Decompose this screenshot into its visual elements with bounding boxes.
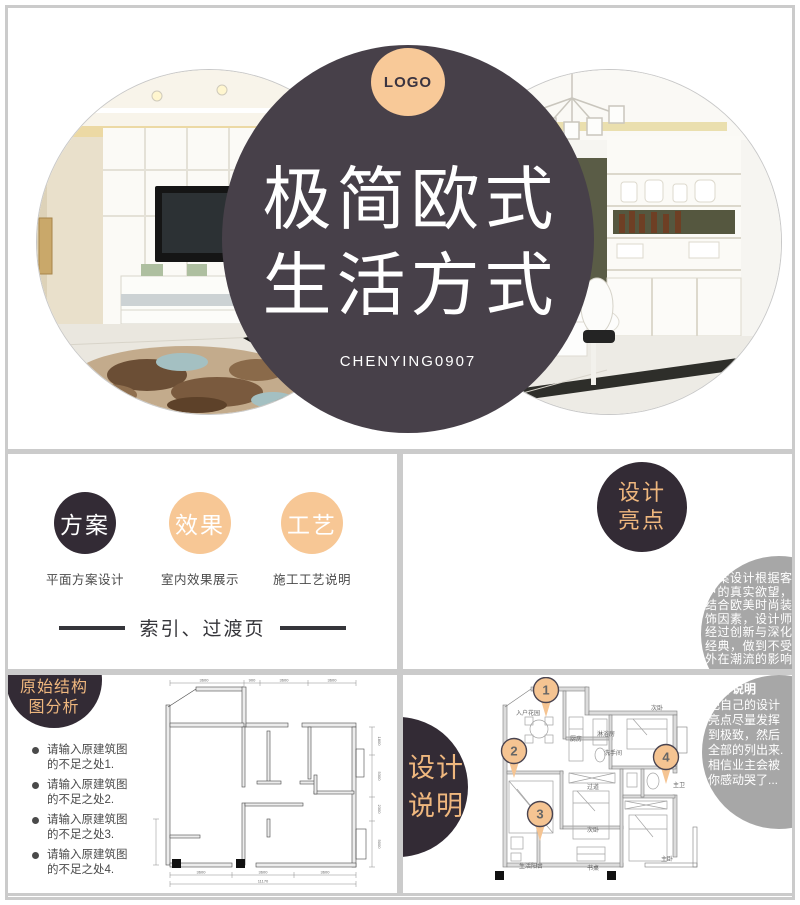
svg-text:生活阳台: 生活阳台 bbox=[519, 862, 543, 870]
svg-text:11170: 11170 bbox=[258, 879, 269, 884]
furnished-floor-plan: 入户花园 厨房 淋浴房 洗手间 次卧 过道 次卧 主卫 生活阳台 书桌 主卧 1 bbox=[481, 677, 699, 891]
list-item: 请输入原建筑图的不足之处1. bbox=[32, 743, 147, 772]
index-circle-craft: 工艺 bbox=[281, 492, 343, 554]
main-title: 极简欧式 生活方式 bbox=[222, 157, 594, 329]
svg-text:洗手间: 洗手间 bbox=[604, 749, 622, 757]
footer-rule-right bbox=[280, 626, 346, 630]
svg-text:入户花园: 入户花园 bbox=[516, 709, 540, 717]
index-caption-craft: 施工工艺说明 bbox=[252, 569, 372, 588]
list-item: 请输入原建筑图的不足之处2. bbox=[32, 778, 147, 807]
index-slide: 方案 效果 工艺 平面方案设计 室内效果展示 施工工艺说明 索引、过渡页 bbox=[8, 454, 397, 669]
svg-text:厨房: 厨房 bbox=[570, 735, 582, 743]
svg-text:5000: 5000 bbox=[377, 840, 382, 850]
footer-label: 索引、过渡页 bbox=[139, 614, 265, 641]
subtitle: CHENYING0907 bbox=[222, 353, 594, 370]
svg-text:主卧: 主卧 bbox=[661, 855, 673, 863]
index-circle-effect-label: 效果 bbox=[175, 506, 225, 540]
template-preview-collage: LOGO 极简欧式 生活方式 CHENYING0907 方案 效果 工艺 平面方… bbox=[0, 0, 800, 905]
numbered-pins: 1 2 3 4 bbox=[502, 678, 679, 842]
bullet-dot-icon bbox=[32, 852, 39, 859]
svg-text:2300: 2300 bbox=[377, 805, 382, 815]
bullet-dot-icon bbox=[32, 782, 39, 789]
index-caption-effect: 室内效果展示 bbox=[140, 569, 260, 588]
design-highlights-slide: 设计 亮点 本案设计根据客 户的真实欲望， 结合欧美时尚装 饰因素，设计师 经过… bbox=[403, 454, 792, 669]
svg-text:3600: 3600 bbox=[197, 870, 207, 875]
svg-text:3600: 3600 bbox=[328, 679, 338, 683]
index-circle-plan: 方案 bbox=[54, 492, 116, 554]
svg-text:2: 2 bbox=[510, 744, 517, 759]
svg-text:主卫: 主卫 bbox=[673, 781, 685, 789]
logo-badge: LOGO bbox=[371, 48, 445, 116]
svg-text:3600: 3600 bbox=[321, 870, 331, 875]
svg-text:5300: 5300 bbox=[377, 772, 382, 782]
svg-text:3: 3 bbox=[536, 807, 543, 822]
index-circle-craft-label: 工艺 bbox=[287, 506, 337, 540]
index-circle-plan-label: 方案 bbox=[60, 506, 110, 540]
pin-3-marker: 3 bbox=[528, 802, 553, 842]
title-dark-circle: LOGO 极简欧式 生活方式 CHENYING0907 bbox=[222, 45, 594, 433]
svg-text:次卧: 次卧 bbox=[651, 704, 663, 712]
footer-rule-left bbox=[59, 626, 125, 630]
structural-floor-plan: 3600 900 3600 3600 1800 5300 2300 5000 3… bbox=[136, 679, 394, 889]
svg-text:1: 1 bbox=[542, 683, 549, 698]
original-structure-slide: 原始结构 图分析 请输入原建筑图的不足之处1. 请输入原建筑图的不足之处2. 请… bbox=[8, 675, 397, 893]
highlights-note-text: 本案设计根据客 户的真实欲望， 结合欧美时尚装 饰因素，设计师 经过创新与深化 … bbox=[705, 572, 792, 667]
main-title-line2: 生活方式 bbox=[227, 243, 594, 329]
index-footer: 索引、过渡页 bbox=[8, 614, 397, 641]
title-slide: LOGO 极简欧式 生活方式 CHENYING0907 bbox=[8, 8, 792, 449]
main-title-line1: 极简欧式 bbox=[227, 157, 594, 243]
highlights-badge-circle: 设计 亮点 bbox=[597, 462, 687, 552]
svg-text:书桌: 书桌 bbox=[587, 864, 599, 872]
svg-text:淋浴房: 淋浴房 bbox=[597, 730, 615, 738]
logo-label: LOGO bbox=[384, 74, 432, 91]
list-item: 请输入原建筑图的不足之处3. bbox=[32, 813, 147, 842]
highlights-badge-line2: 亮点 bbox=[597, 507, 687, 535]
design-description-slide: 入户花园 厨房 淋浴房 洗手间 次卧 过道 次卧 主卫 生活阳台 书桌 主卧 1 bbox=[403, 675, 792, 893]
highlights-badge-line1: 设计 bbox=[597, 479, 687, 507]
description-note-text: 设计说明 把自己的设计 亮点尽量发挥 到极致，然后 全部的列出来. 相信业主会被… bbox=[708, 682, 790, 788]
svg-text:次卧: 次卧 bbox=[587, 826, 599, 834]
bullet-dot-icon bbox=[32, 817, 39, 824]
svg-text:过道: 过道 bbox=[587, 783, 599, 791]
list-item: 请输入原建筑图的不足之处4. bbox=[32, 848, 147, 877]
svg-text:1800: 1800 bbox=[377, 737, 382, 747]
svg-text:3600: 3600 bbox=[200, 679, 210, 683]
svg-text:3600: 3600 bbox=[259, 870, 269, 875]
svg-text:900: 900 bbox=[249, 679, 256, 683]
structure-bullet-list: 请输入原建筑图的不足之处1. 请输入原建筑图的不足之处2. 请输入原建筑图的不足… bbox=[32, 743, 147, 883]
description-note-title: 设计说明 bbox=[708, 682, 790, 697]
structure-badge-circle: 原始结构 图分析 bbox=[8, 675, 102, 728]
bullet-dot-icon bbox=[32, 747, 39, 754]
pin-4-marker: 4 bbox=[654, 745, 679, 785]
index-circle-effect: 效果 bbox=[169, 492, 231, 554]
svg-text:3600: 3600 bbox=[280, 679, 290, 683]
svg-text:4: 4 bbox=[662, 750, 670, 765]
index-caption-plan: 平面方案设计 bbox=[25, 569, 145, 588]
structure-badge-line2: 图分析 bbox=[8, 698, 102, 718]
structure-badge-line1: 原始结构 bbox=[8, 678, 102, 698]
description-badge-text: 设计 说明 bbox=[403, 749, 469, 825]
